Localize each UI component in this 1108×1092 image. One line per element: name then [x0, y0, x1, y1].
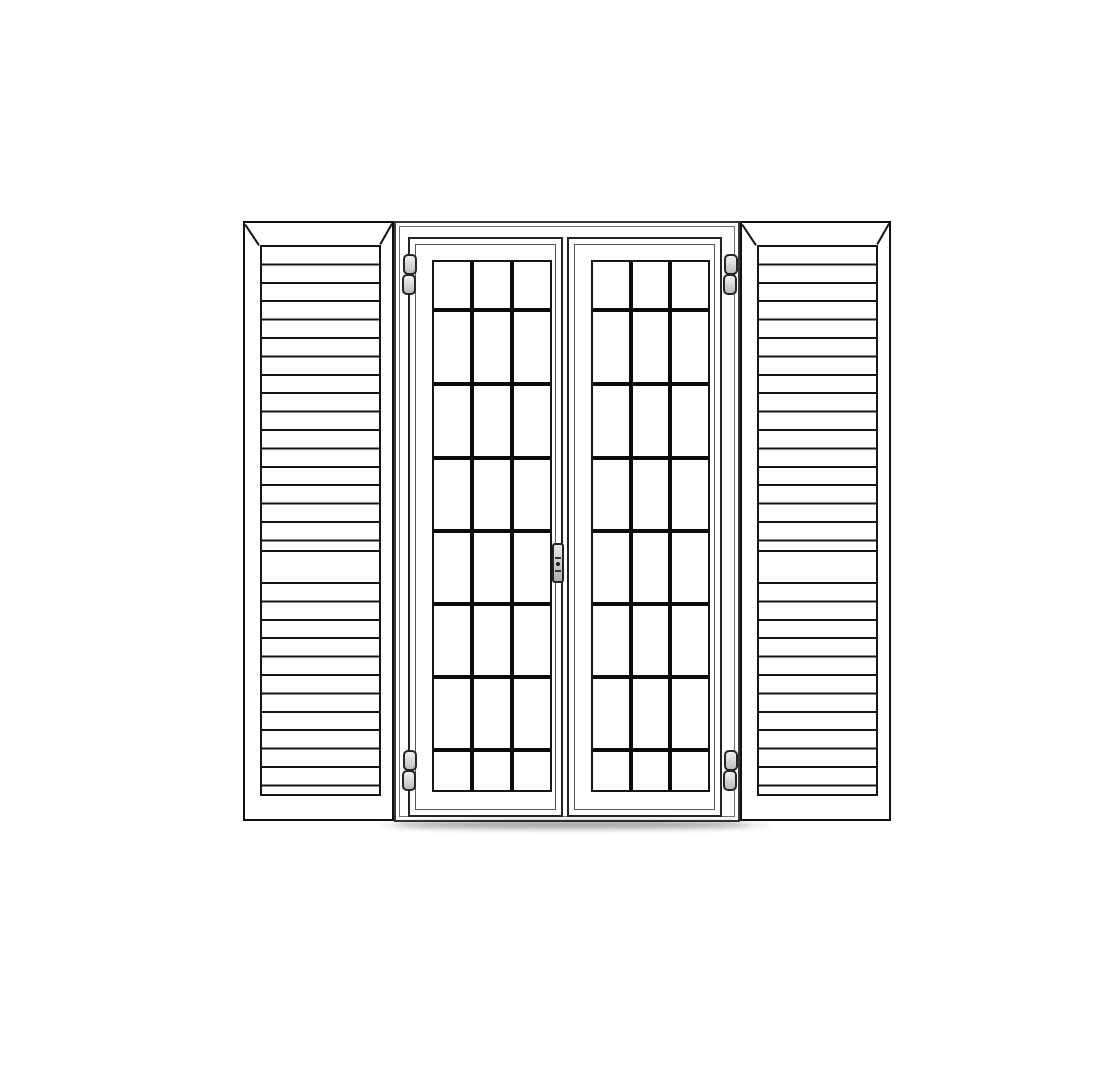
right-horizontal-muntin-bar — [593, 308, 708, 312]
left-horizontal-muntin-bar — [434, 308, 550, 312]
door-handle-dot — [556, 562, 560, 566]
right-door-glass-grid — [591, 260, 710, 792]
left-horizontal-muntin-bar — [434, 529, 550, 533]
hinge-top-left-knuckle-lower — [402, 274, 416, 295]
hinge-top-right-knuckle-upper — [724, 254, 738, 275]
left-vertical-muntin-bar — [470, 262, 474, 790]
right-horizontal-muntin-bar — [593, 529, 708, 533]
right-vertical-muntin-bar — [668, 262, 672, 790]
door-handle-divider-1 — [555, 570, 561, 572]
left-shutter-upper-slats — [262, 247, 379, 552]
hinge-bottom-left — [402, 750, 418, 794]
hinge-bottom-left-knuckle-upper — [403, 750, 417, 771]
ground-shadow-1 — [394, 821, 750, 828]
hinge-bottom-left-knuckle-lower — [402, 770, 416, 791]
left-shutter-louver-panel — [260, 245, 381, 796]
door-handle — [552, 543, 564, 583]
hinge-bottom-right-knuckle-upper — [724, 750, 738, 771]
right-shutter-mid-rail — [759, 552, 876, 582]
left-horizontal-muntin-bar — [434, 602, 550, 606]
door-handle-divider-0 — [555, 557, 561, 559]
right-door-leaf — [567, 237, 722, 817]
right-shutter-louver-panel — [757, 245, 878, 796]
right-horizontal-muntin-bar — [593, 456, 708, 460]
right-shutter-miter-joint-line-right — [876, 223, 890, 245]
left-horizontal-muntin-bar — [434, 675, 550, 679]
right-vertical-muntin-bar — [629, 262, 633, 790]
left-door-leaf — [408, 237, 563, 817]
left-vertical-muntin-bar — [510, 262, 514, 790]
hinge-top-left-knuckle-upper — [403, 254, 417, 275]
right-shutter-lower-slats — [759, 582, 876, 798]
left-shutter-miter-joint-line-right — [379, 223, 393, 245]
right-shutter-upper-slats — [759, 247, 876, 552]
left-horizontal-muntin-bar — [434, 382, 550, 386]
technical-drawing-canvas — [0, 0, 1108, 1092]
right-shutter — [740, 221, 891, 821]
hinge-top-left — [402, 254, 418, 298]
right-horizontal-muntin-bar — [593, 382, 708, 386]
left-shutter — [243, 221, 394, 821]
right-shutter-miter-joint-line-left — [741, 224, 757, 246]
left-shutter-miter-joint-line-left — [244, 224, 260, 246]
right-horizontal-muntin-bar — [593, 602, 708, 606]
left-door-glass-grid — [432, 260, 552, 792]
hinge-bottom-right-knuckle-lower — [723, 770, 737, 791]
right-horizontal-muntin-bar — [593, 748, 708, 752]
left-horizontal-muntin-bar — [434, 456, 550, 460]
hinge-top-right — [723, 254, 739, 298]
hinge-bottom-right — [723, 750, 739, 794]
left-horizontal-muntin-bar — [434, 748, 550, 752]
right-horizontal-muntin-bar — [593, 675, 708, 679]
hinge-top-right-knuckle-lower — [723, 274, 737, 295]
left-shutter-mid-rail — [262, 552, 379, 582]
left-shutter-lower-slats — [262, 582, 379, 798]
